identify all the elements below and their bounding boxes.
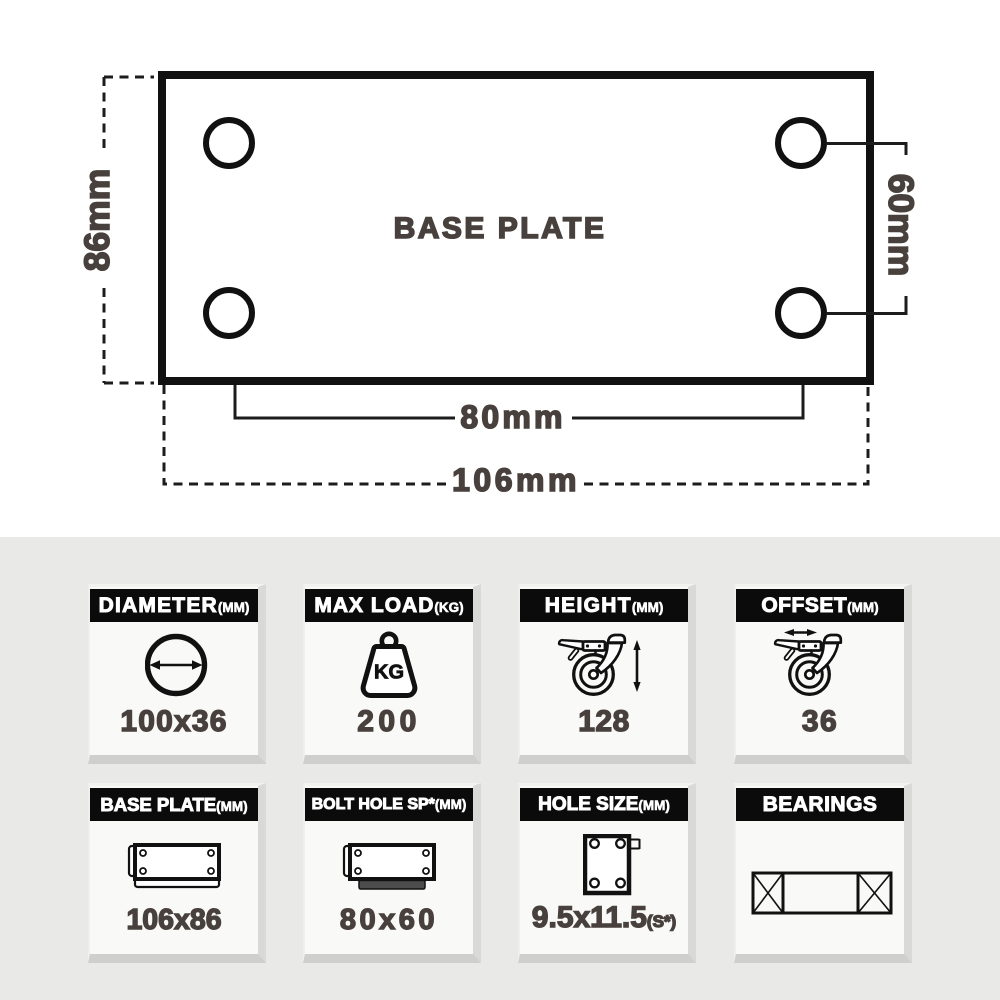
- svg-text:KG: KG: [374, 662, 404, 684]
